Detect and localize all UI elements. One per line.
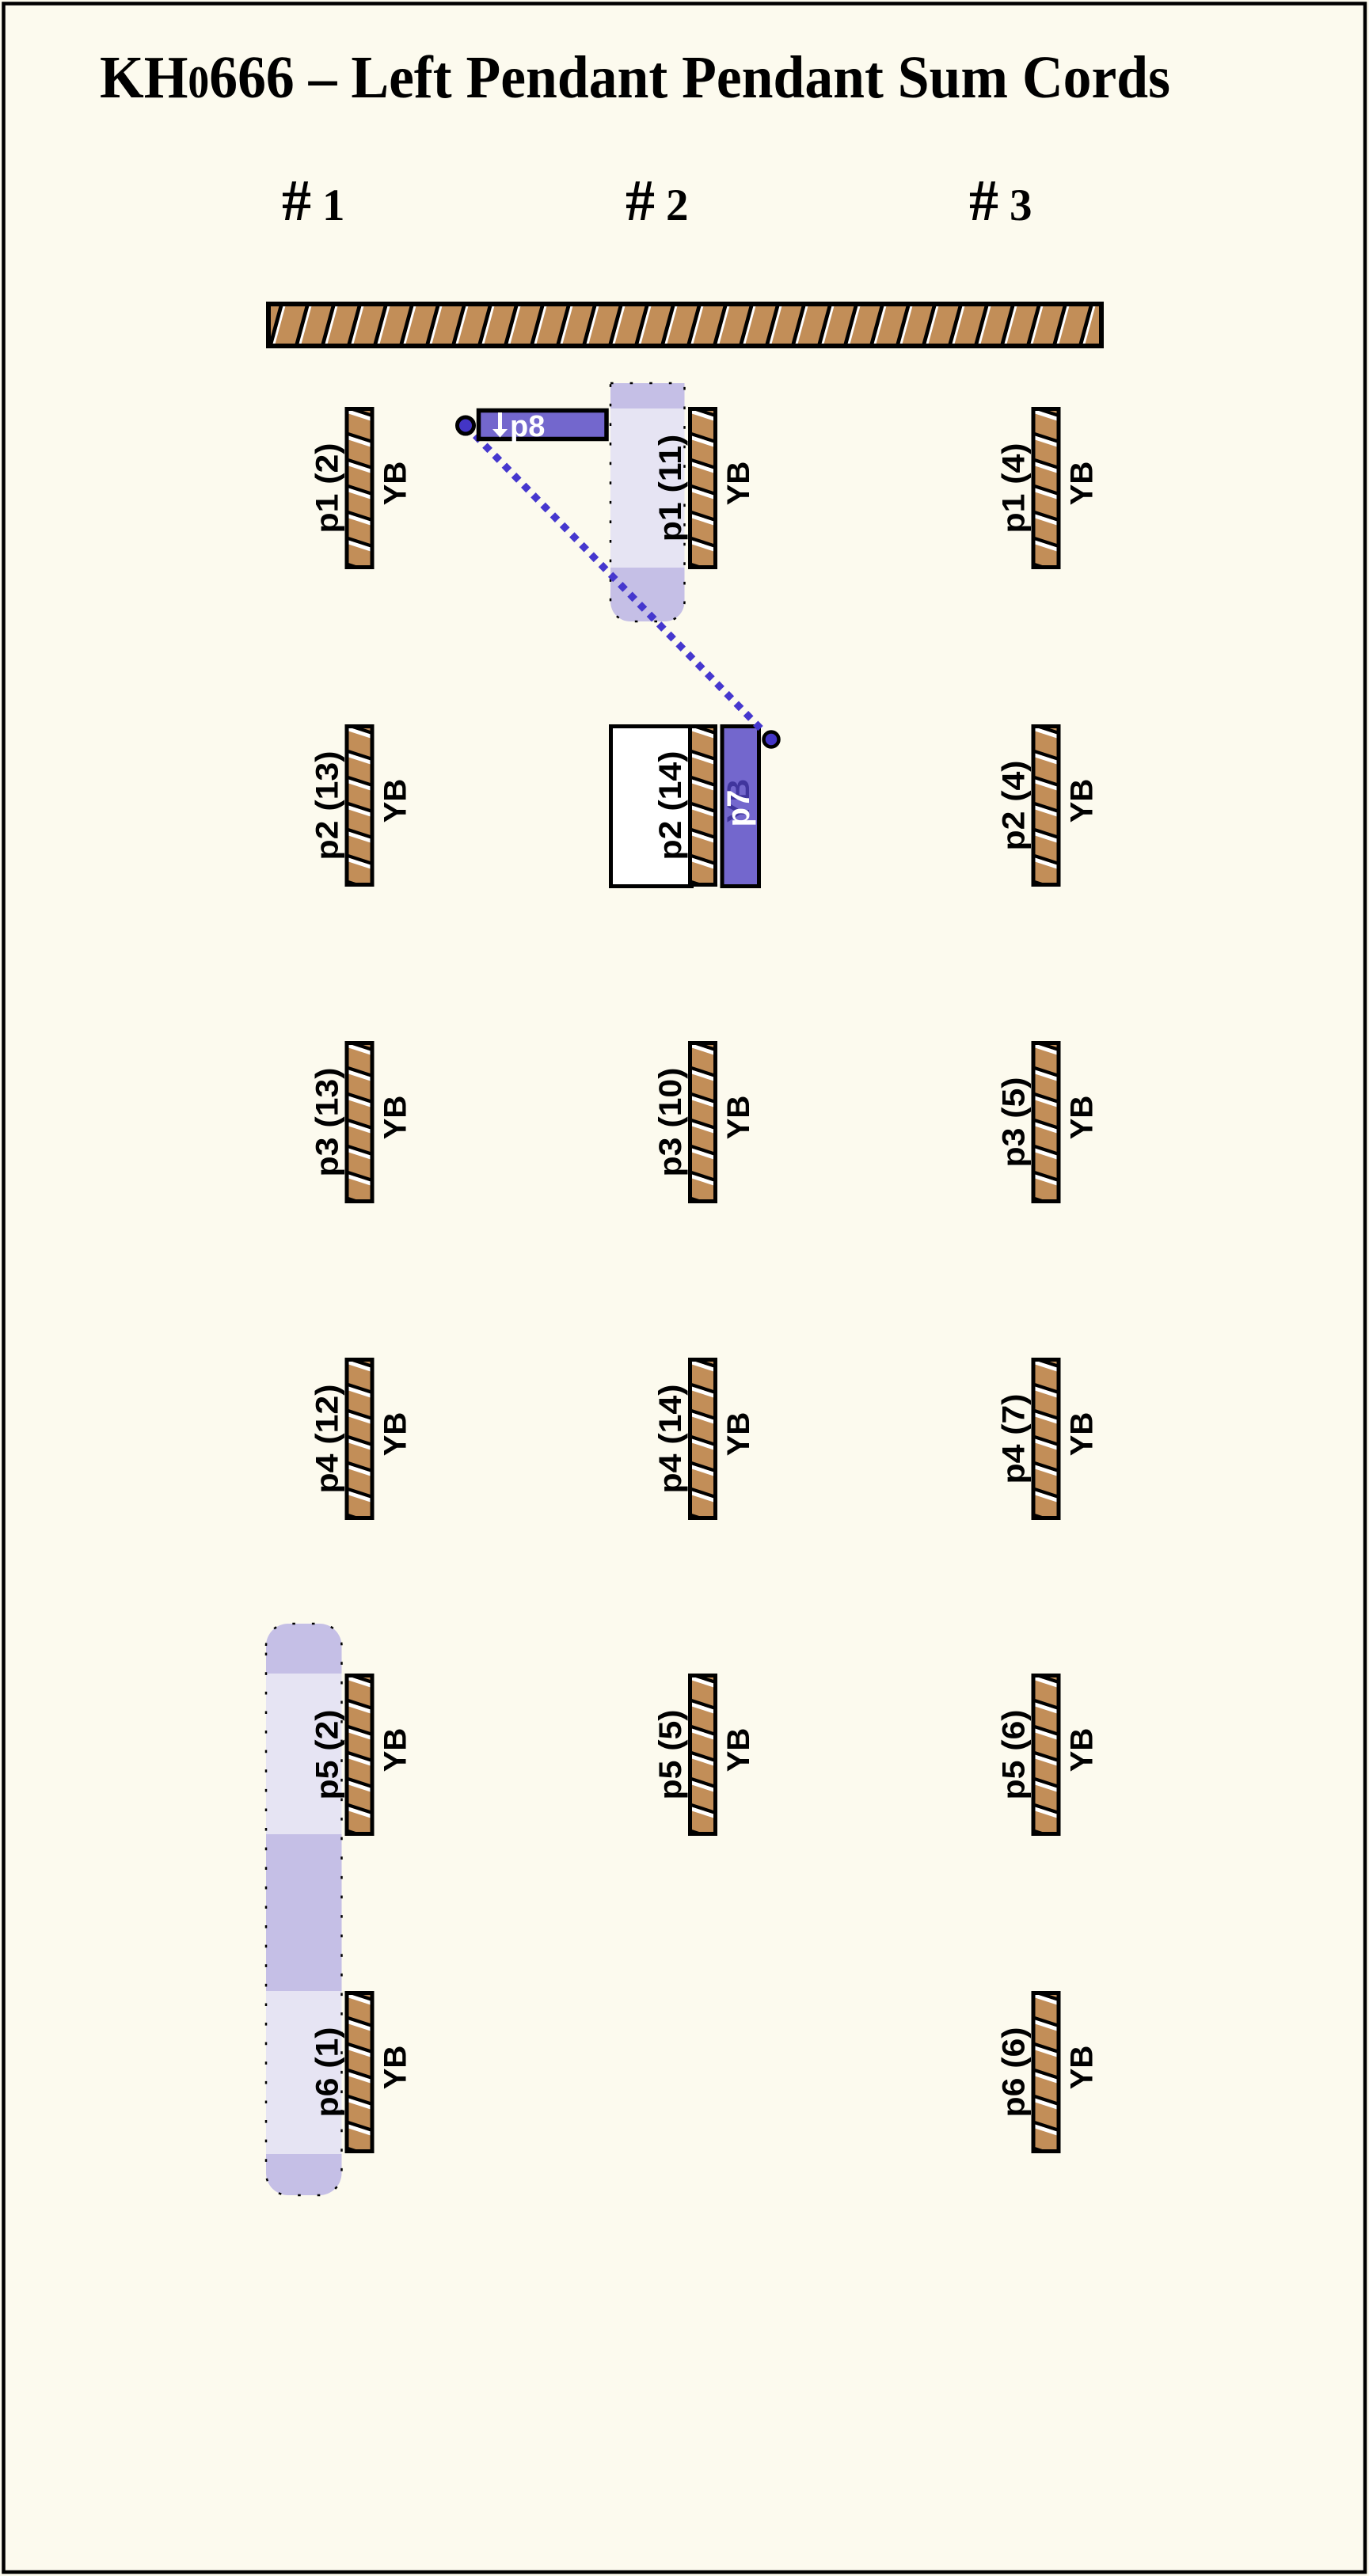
svg-text:YB: YB bbox=[721, 1412, 756, 1457]
svg-text:p6 (6): p6 (6) bbox=[996, 2027, 1031, 2117]
svg-text:p3 (5): p3 (5) bbox=[996, 1077, 1031, 1167]
svg-text:YB: YB bbox=[378, 2046, 413, 2090]
svg-text:p4 (7): p4 (7) bbox=[996, 1393, 1031, 1484]
svg-text:p4 (12): p4 (12) bbox=[310, 1385, 344, 1494]
svg-text:p5 (2): p5 (2) bbox=[310, 1709, 344, 1799]
svg-text:p2 (14): p2 (14) bbox=[652, 751, 687, 861]
svg-text:p1 (11): p1 (11) bbox=[652, 435, 687, 542]
svg-text:KH0666 – Left Pendant Pendant: KH0666 – Left Pendant Pendant Sum Cords bbox=[100, 44, 1170, 111]
svg-text:p1 (4): p1 (4) bbox=[996, 443, 1031, 533]
svg-text:p3 (13): p3 (13) bbox=[310, 1068, 344, 1177]
svg-text:YB: YB bbox=[1065, 1728, 1100, 1772]
svg-text:YB: YB bbox=[378, 1728, 413, 1772]
svg-text:YB: YB bbox=[378, 1096, 413, 1140]
svg-text:YB: YB bbox=[1065, 779, 1100, 823]
svg-text:p7: p7 bbox=[721, 790, 756, 827]
svg-text:p5 (5): p5 (5) bbox=[652, 1709, 687, 1799]
svg-text:p8: p8 bbox=[510, 410, 545, 443]
svg-text:p5 (6): p5 (6) bbox=[996, 1709, 1031, 1799]
svg-text:YB: YB bbox=[721, 1096, 756, 1140]
svg-text:YB: YB bbox=[721, 1728, 756, 1772]
svg-text:YB: YB bbox=[1065, 1412, 1100, 1457]
svg-text:YB: YB bbox=[1065, 462, 1100, 506]
svg-text:p2 (4): p2 (4) bbox=[996, 760, 1031, 850]
svg-text:YB: YB bbox=[378, 779, 413, 823]
svg-text:YB: YB bbox=[721, 462, 756, 506]
svg-text:YB: YB bbox=[378, 1412, 413, 1457]
svg-text:p6 (1): p6 (1) bbox=[310, 2027, 344, 2117]
svg-text:p3 (10): p3 (10) bbox=[652, 1068, 687, 1177]
svg-text:YB: YB bbox=[1065, 1096, 1100, 1140]
svg-text:YB: YB bbox=[378, 462, 413, 506]
svg-text:p2 (13): p2 (13) bbox=[310, 751, 344, 861]
svg-text:p4 (14): p4 (14) bbox=[652, 1385, 687, 1494]
svg-text:p1 (2): p1 (2) bbox=[310, 443, 344, 533]
svg-text:YB: YB bbox=[1065, 2046, 1100, 2090]
